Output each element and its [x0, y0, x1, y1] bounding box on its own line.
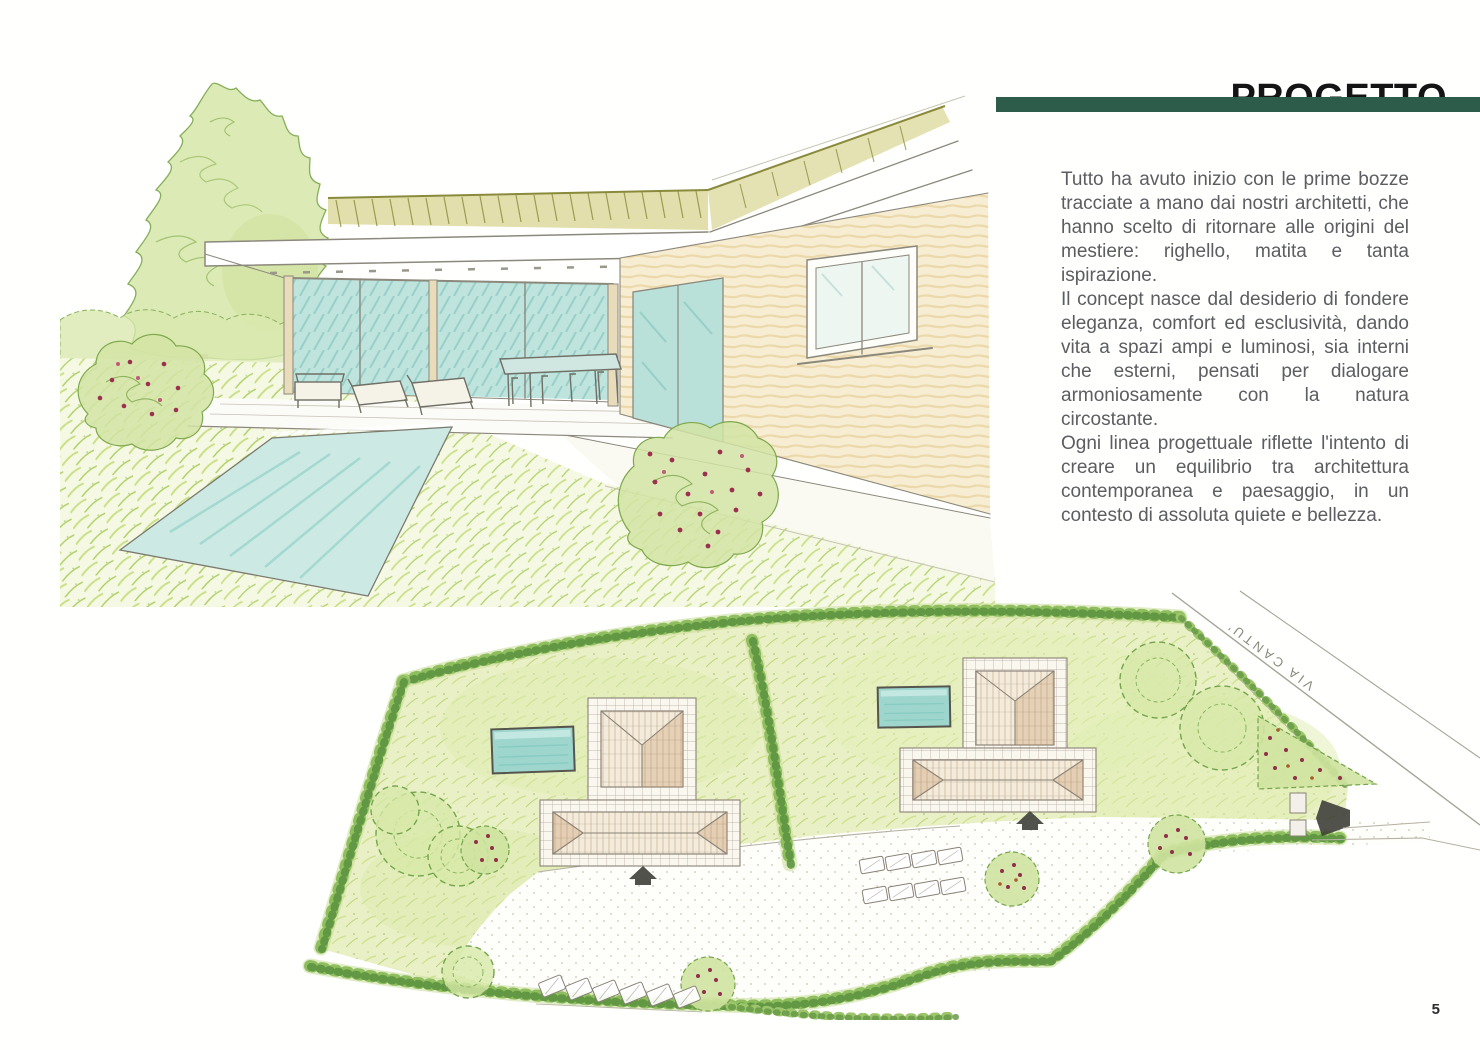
- paragraph: Ogni linea progettuale riflette l'intent…: [1061, 432, 1409, 528]
- glass-door-sketch: [633, 278, 723, 442]
- plan-pool: [491, 727, 574, 774]
- site-plan-drawing: VIA CANTU': [300, 588, 1480, 1020]
- brochure-page: PROGETTO Tutto ha avuto inizio con le pr…: [0, 0, 1480, 1050]
- plan-pool: [878, 686, 951, 727]
- paragraph: Tutto ha avuto inizio con le prime bozze…: [1061, 168, 1409, 288]
- paragraph: Il concept nasce dal desiderio di fonder…: [1061, 288, 1409, 432]
- page-number: 5: [1432, 1001, 1440, 1018]
- accent-bar: [996, 97, 1480, 112]
- villa-perspective-sketch: [60, 62, 995, 607]
- body-text: Tutto ha avuto inizio con le prime bozze…: [1061, 168, 1409, 528]
- flower-bush-sketch: [618, 422, 778, 568]
